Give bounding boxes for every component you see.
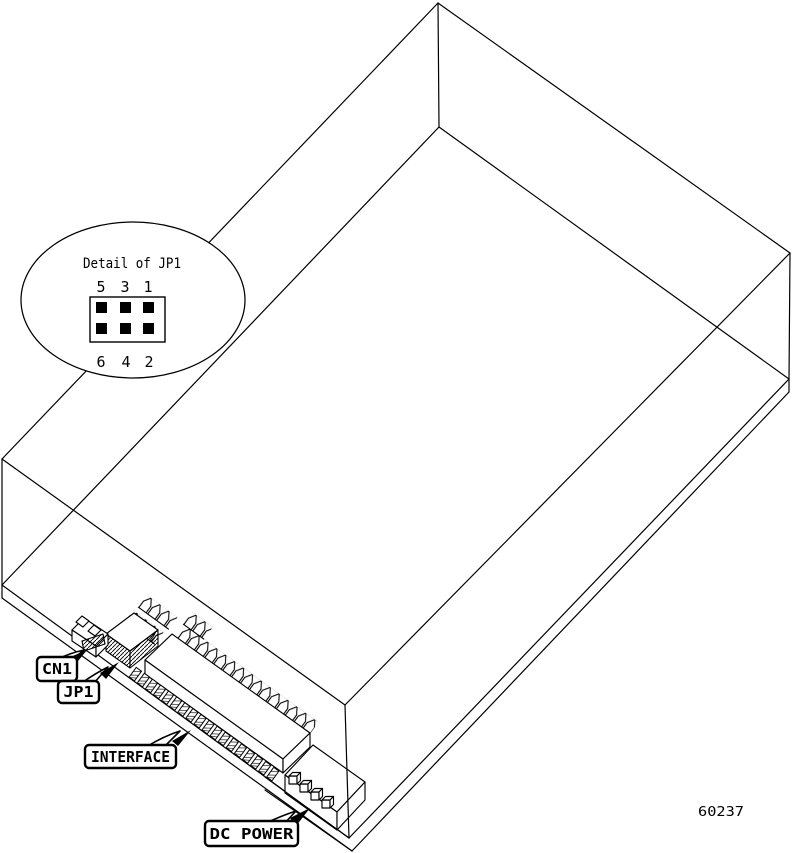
cn1-label: CN1 xyxy=(42,660,72,678)
callout-cn1: CN1 xyxy=(37,650,87,681)
jumper-pin xyxy=(120,302,131,313)
dc-pin xyxy=(322,800,330,808)
jumper-pin-label-1: 1 xyxy=(143,278,152,296)
figure-number: 60237 xyxy=(698,804,744,820)
interface-label: INTERFACE xyxy=(91,748,170,766)
dc-pin xyxy=(289,776,297,784)
jumper-pin xyxy=(120,323,131,334)
jumper-pin-label-6: 6 xyxy=(96,353,105,371)
callout-dc-power: DC POWER xyxy=(205,808,310,846)
jumper-pin-label-4: 4 xyxy=(121,353,130,371)
callout-interface: INTERFACE xyxy=(85,730,191,768)
detail-title: Detail of JP1 xyxy=(83,256,181,272)
jp1-label: JP1 xyxy=(64,683,94,701)
jumper-pin xyxy=(143,323,154,334)
jumper-pin-label-3: 3 xyxy=(120,278,129,296)
jumper-pin xyxy=(143,302,154,313)
drive-connector-diagram: Detail of JP1 5 3 1 6 4 2 xyxy=(0,0,794,853)
pcb-edge-strip xyxy=(2,379,789,851)
jumper-pin xyxy=(96,323,107,334)
dc-power-label: DC POWER xyxy=(210,825,295,843)
jumper-pin-label-2: 2 xyxy=(144,353,153,371)
jumper-pin xyxy=(96,302,107,313)
jumper-pin-label-5: 5 xyxy=(96,278,105,296)
detail-bubble: Detail of JP1 5 3 1 6 4 2 xyxy=(21,222,245,378)
dc-pin xyxy=(300,784,308,792)
dc-pin xyxy=(311,792,319,800)
